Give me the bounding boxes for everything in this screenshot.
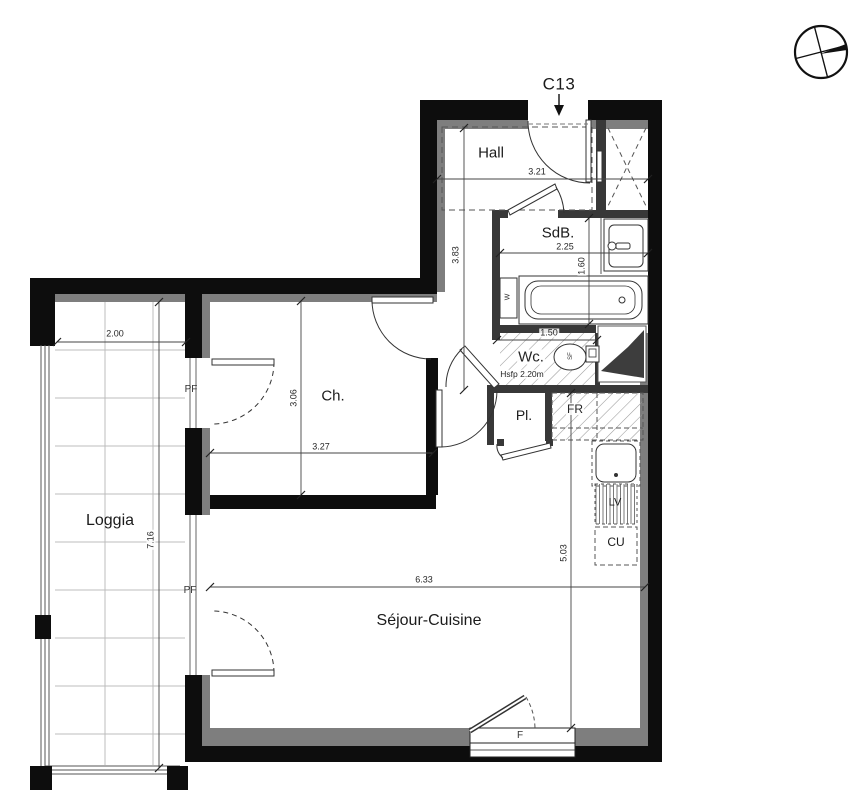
dim-hall-depth: 3.83 [452, 245, 461, 265]
pf-label-bedroom: PF [185, 385, 198, 395]
bathroom-door [508, 184, 564, 215]
room-label-fr: FR [566, 403, 584, 415]
dim-wc-width: 1.50 [539, 329, 559, 338]
dim-loggia-width: 2.00 [105, 330, 125, 339]
hall-closet-door [597, 151, 602, 182]
pf-window-frames [190, 358, 196, 675]
dim-ch-depth: 3.06 [290, 388, 299, 408]
closet-door-pl [497, 443, 551, 460]
dim-hall-width: 3.21 [527, 168, 547, 177]
fixture-label-cu: CU [607, 536, 624, 548]
room-label-sejour-cuisine: Séjour-Cuisine [377, 613, 482, 629]
room-label-loggia: Loggia [86, 513, 134, 529]
wc-ceiling-height-note: Hsfp 2.20m [499, 370, 544, 379]
unit-code-label: C13 [543, 76, 576, 93]
room-label-ch: Ch. [321, 389, 344, 404]
dim-loggia-depth: 7.16 [147, 530, 156, 550]
hall-ceiling-dashed [442, 127, 592, 210]
washing-column-label: W [505, 294, 512, 301]
loggia-tile-grid [55, 302, 185, 765]
dim-sejour-width: 6.33 [414, 576, 434, 585]
dimension-lines [53, 124, 652, 772]
toilet-label: SF [568, 352, 574, 360]
technical-shaft [598, 326, 646, 382]
wc-door [446, 346, 499, 388]
washbasin [604, 219, 648, 271]
closet-cross [608, 128, 646, 206]
bedroom-door [372, 297, 433, 359]
room-label-sdb: SdB. [542, 226, 575, 241]
dim-ch-width: 3.27 [311, 443, 331, 452]
dim-sejour-depth: 5.03 [560, 543, 569, 563]
north-compass-icon [795, 26, 847, 78]
bathtub [519, 276, 648, 324]
pf-label-living: PF [184, 586, 197, 596]
window-f-label: F [517, 731, 523, 741]
toilet-cistern [586, 346, 599, 362]
dim-sdb-width: 2.25 [555, 243, 575, 252]
dimension-ticks [53, 124, 652, 772]
fr-zone [552, 393, 643, 440]
pf-door-bedroom [212, 359, 274, 424]
floor-plan-drawing [0, 0, 867, 800]
floor-plan-c13: C13 Hall SdB. Wc. Hsfp 2.20m Pl. FR LV C… [0, 0, 867, 800]
dim-sdb-depth: 1.60 [578, 256, 587, 276]
fixture-label-lv: LV [609, 498, 622, 509]
loggia-railing [30, 345, 188, 790]
room-label-pl: Pl. [516, 408, 532, 422]
room-label-hall: Hall [478, 146, 504, 161]
pf-door-living [212, 611, 274, 676]
kitchen-sink [592, 441, 640, 486]
doors [212, 120, 602, 676]
entrance-arrow-icon [554, 94, 564, 116]
room-label-wc: Wc. [517, 350, 545, 365]
window-f [470, 697, 575, 757]
